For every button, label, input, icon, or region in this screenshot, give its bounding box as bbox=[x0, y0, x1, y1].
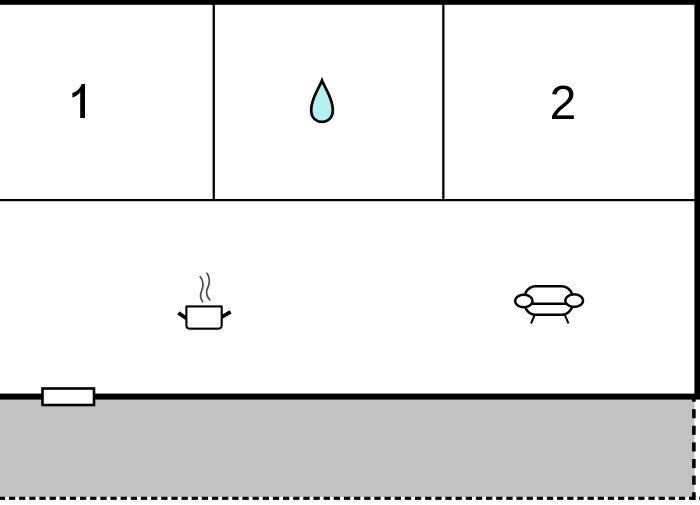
svg-text:2: 2 bbox=[550, 77, 577, 130]
